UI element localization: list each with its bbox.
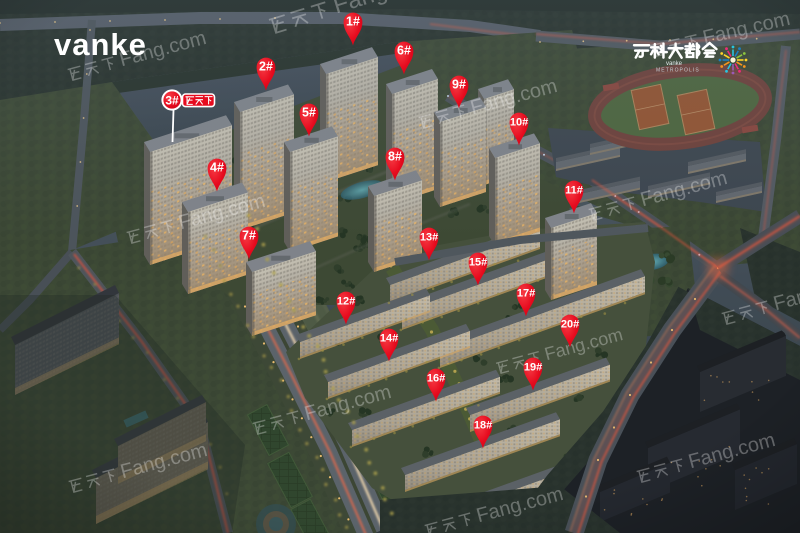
svg-text:17#: 17# [517, 287, 535, 299]
svg-text:5#: 5# [302, 105, 316, 119]
svg-text:20#: 20# [561, 318, 579, 330]
svg-text:12#: 12# [337, 295, 355, 307]
svg-text:6#: 6# [397, 43, 411, 57]
svg-text:19#: 19# [524, 361, 542, 373]
svg-text:16#: 16# [427, 372, 445, 384]
svg-text:METROPOLIS: METROPOLIS [656, 68, 700, 74]
svg-text:8#: 8# [388, 149, 402, 163]
svg-text:15#: 15# [469, 256, 487, 268]
svg-text:2#: 2# [259, 59, 273, 73]
svg-text:18#: 18# [474, 419, 492, 431]
svg-text:vanke: vanke [54, 27, 147, 62]
svg-text:11#: 11# [565, 184, 583, 196]
svg-text:3#: 3# [165, 93, 179, 107]
svg-text:4#: 4# [210, 160, 224, 174]
svg-text:7#: 7# [242, 228, 256, 242]
svg-text:13#: 13# [420, 231, 438, 243]
svg-text:1#: 1# [346, 14, 360, 28]
svg-text:9#: 9# [452, 77, 466, 91]
svg-text:vanke: vanke [666, 61, 683, 67]
svg-text:14#: 14# [380, 332, 398, 344]
svg-text:10#: 10# [510, 116, 528, 128]
